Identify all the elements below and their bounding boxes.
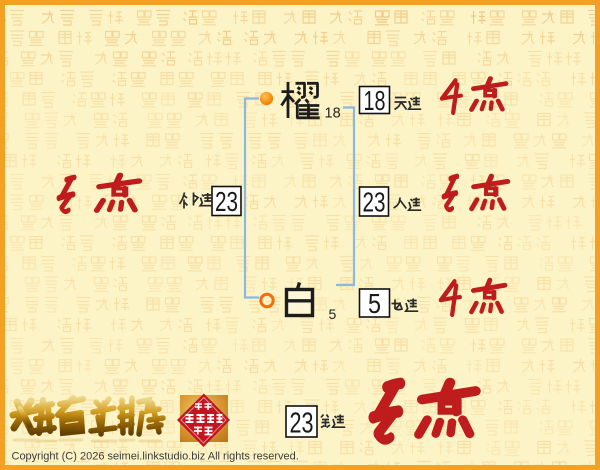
svg-text:23: 23: [363, 187, 386, 218]
svg-text:18: 18: [325, 106, 341, 122]
svg-text:18: 18: [364, 85, 386, 116]
svg-text:5: 5: [329, 306, 337, 322]
svg-text:23: 23: [215, 186, 238, 217]
svg-text:23: 23: [290, 408, 314, 440]
svg-text:5: 5: [368, 288, 381, 319]
svg-text:Copyright (C) 2026 seimei.link: Copyright (C) 2026 seimei.linkstudio.biz…: [12, 451, 299, 463]
